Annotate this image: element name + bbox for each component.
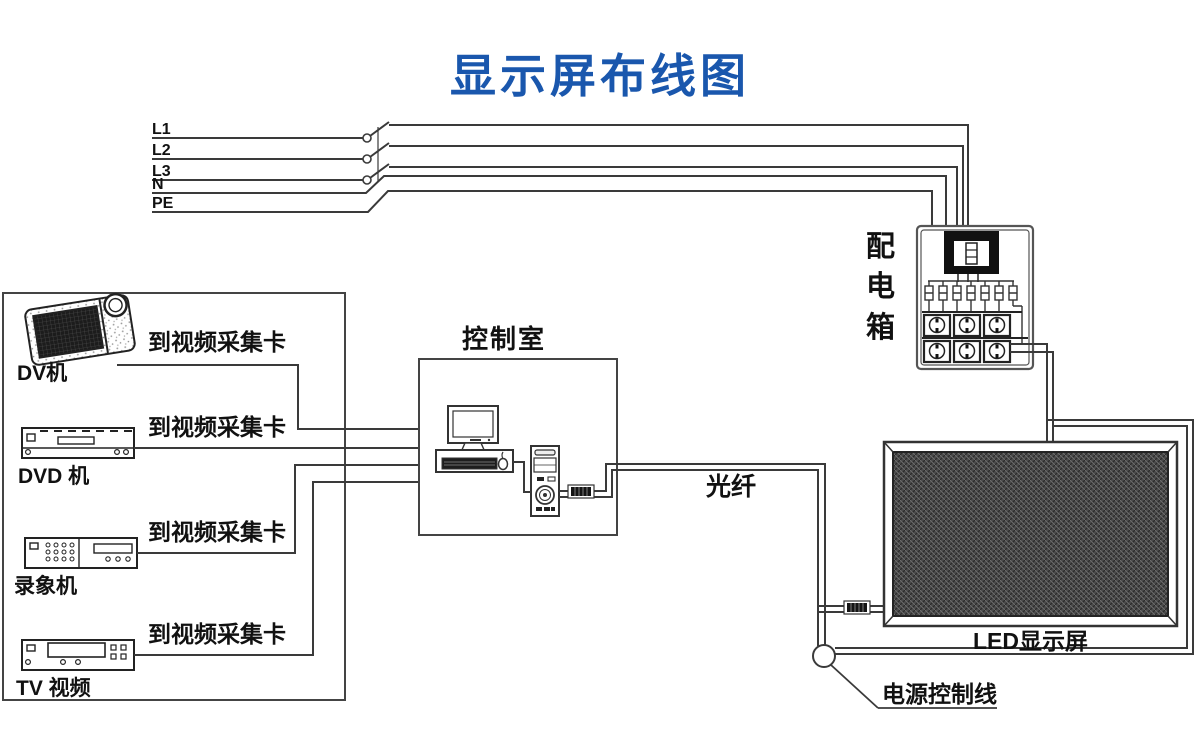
- tv-device-icon: [22, 640, 134, 670]
- capture-card-label-2: 到视频采集卡: [148, 416, 286, 439]
- page-title: 显示屏布线图: [0, 40, 1200, 106]
- fiber-transceiver-icon: [568, 485, 594, 498]
- desk-tower-wire: [513, 462, 531, 492]
- tower-pc-icon: [531, 446, 559, 516]
- junction-circle: [813, 645, 835, 667]
- capture-card-label-1: 到视频采集卡: [148, 331, 286, 354]
- mains-label-l1: L1: [152, 122, 171, 138]
- tv-device-label: TV 视频: [16, 678, 91, 699]
- vcr-icon: [25, 538, 137, 568]
- dvd-player-icon: [22, 428, 134, 458]
- three-phase-switch-icon: [363, 122, 389, 184]
- mains-label-l2: L2: [152, 143, 171, 159]
- distribution-box: [917, 226, 1033, 369]
- capture-card-wires: [117, 365, 419, 655]
- distribution-box-label: 配 电 箱: [866, 232, 895, 343]
- dvd-player-label: DVD 机: [18, 466, 89, 487]
- distribution-box-char-3: 箱: [866, 313, 895, 343]
- mains-label-pe: PE: [152, 196, 173, 212]
- mains-label-n: N: [152, 177, 164, 193]
- main-breaker-icon: [944, 231, 999, 274]
- distribution-box-char-2: 电: [866, 272, 895, 302]
- fiber-label: 光纤: [706, 475, 756, 500]
- vcr-label: 录象机: [14, 576, 77, 597]
- led-screen-label: LED显示屏: [973, 630, 1088, 653]
- mains-lines: [152, 125, 968, 245]
- dv-camera-label: DV机: [17, 363, 67, 384]
- capture-card-label-4: 到视频采集卡: [148, 623, 286, 646]
- fiber-connector-icon: [844, 601, 870, 614]
- led-panel: [884, 442, 1177, 626]
- capture-card-label-3: 到视频采集卡: [148, 521, 286, 544]
- control-room-label: 控制室: [462, 326, 546, 352]
- power-control-label: 电源控制线: [882, 683, 997, 706]
- dv-camera-icon: [24, 292, 136, 366]
- computer-icon: [436, 406, 513, 472]
- control-room-box: [419, 359, 617, 535]
- distribution-box-char-1: 配: [866, 232, 895, 262]
